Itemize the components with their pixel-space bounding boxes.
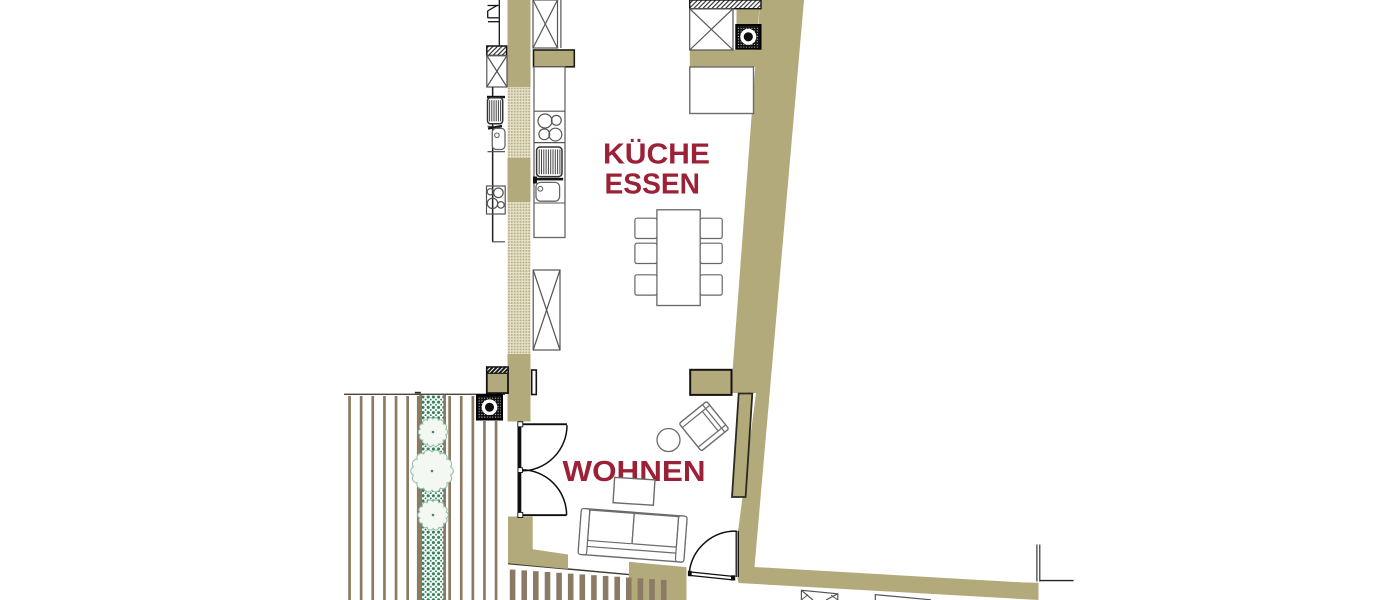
svg-text:KÜCHE: KÜCHE [603,138,710,171]
svg-text:ESSEN: ESSEN [605,169,701,201]
